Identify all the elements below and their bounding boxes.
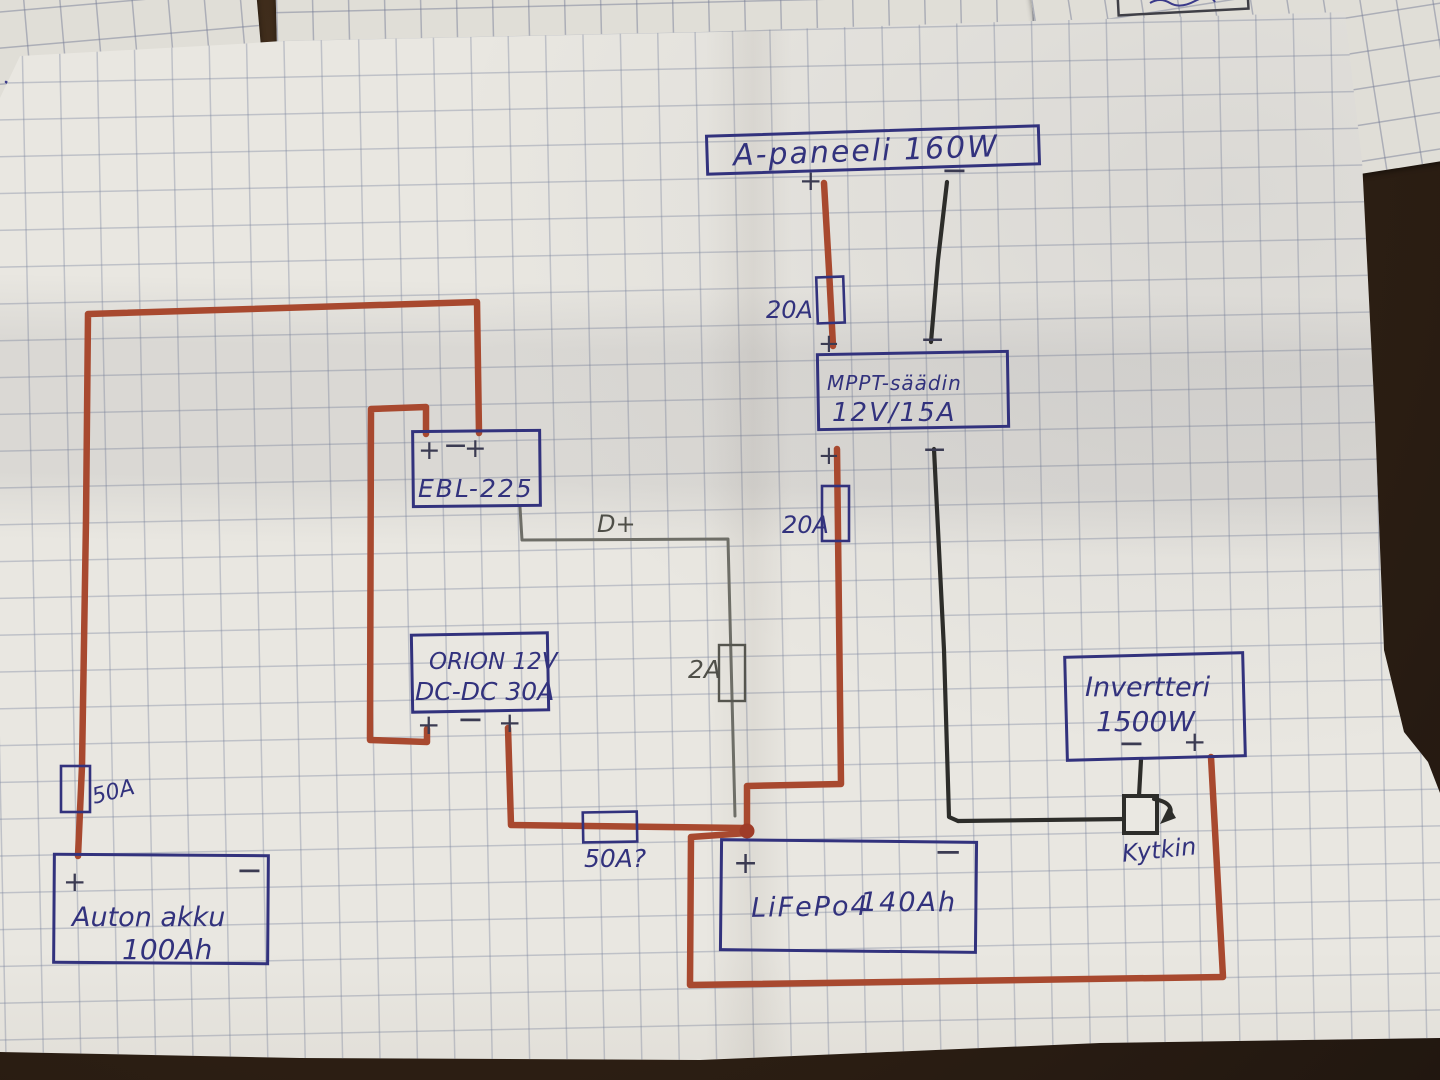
fuse-car-battery-50a: [61, 766, 90, 812]
inverter-plus-terminal: +: [1183, 725, 1206, 758]
mppt-plus-bottom-terminal: +: [818, 441, 840, 471]
fuse-dplus-label: 2A: [688, 655, 721, 684]
fuse-panel-label: 20A: [766, 296, 813, 324]
component-boxes: [54, 126, 1246, 964]
blue-scribble-on-back-sheet: [1150, 0, 1215, 6]
graph-paper-sheet: A-paneeli 160W + − 20A + − MPPT-säädin 1…: [0, 0, 1440, 1080]
ebl-name: EBL-225: [418, 474, 534, 503]
switch-lever-arrowhead: [1160, 806, 1176, 824]
switch-symbol: [1124, 796, 1176, 833]
wire-junction-blob: [740, 824, 755, 839]
ebl-terminal-1: +: [418, 435, 441, 466]
car-battery-name: Auton akku: [70, 902, 225, 933]
orion-name-line1: ORION 12V: [429, 649, 560, 675]
photo-of-wiring-diagram: A-paneeli 160W + − 20A + − MPPT-säädin 1…: [0, 0, 1440, 1080]
mppt-plus-top-terminal: +: [818, 329, 840, 359]
fuse-orion-label: 50A?: [584, 844, 646, 873]
orion-terminal-3: +: [498, 706, 521, 739]
orion-terminal-1: +: [417, 708, 440, 741]
inverter-minus-terminal: −: [1118, 724, 1145, 762]
mppt-minus-top-terminal: −: [920, 322, 945, 357]
mppt-name: MPPT-säädin: [827, 371, 962, 395]
lifepo-plus-terminal: +: [733, 846, 758, 881]
partial-box-on-back-sheet: [1118, 0, 1249, 15]
fuse-car-battery-label: 50A: [89, 775, 137, 810]
wire-inverter-minus-to-switch: [1139, 760, 1141, 796]
inverter-name: Invertteri: [1085, 672, 1211, 703]
wire-mppt-minus-to-lifepo: [934, 449, 958, 821]
ebl-terminal-3: +: [464, 433, 487, 464]
wire-mppt-plus-to-junction: [747, 449, 841, 832]
car-battery-plus-terminal: +: [63, 865, 86, 898]
lifepo-capacity: 140Ah: [860, 887, 957, 918]
dplus-label: D+: [597, 510, 636, 538]
inverter-rating: 1500W: [1096, 705, 1196, 738]
car-battery-capacity: 100Ah: [122, 933, 212, 966]
lifepo-name: LiFePo4: [751, 891, 870, 924]
mppt-rating: 12V/15A: [832, 398, 957, 428]
switch-body: [1124, 796, 1157, 833]
solar-panel-plus-terminal: +: [799, 164, 822, 197]
fuse-mppt-label: 20A: [782, 511, 829, 539]
car-battery-minus-terminal: −: [236, 851, 263, 889]
wire-lifepo-minus-to-switch: [958, 819, 1126, 821]
wire-panel-minus-to-mppt: [931, 182, 947, 342]
wire-panel-plus-to-mppt: [824, 183, 833, 346]
lifepo-minus-terminal: −: [934, 832, 963, 872]
wire-car-battery-to-ebl: [78, 302, 479, 856]
fuses: [61, 277, 849, 843]
switch-label: Kytkin: [1121, 832, 1198, 868]
orion-name-line2: DC-DC 30A: [415, 677, 554, 706]
mppt-minus-bottom-terminal: −: [922, 432, 947, 467]
orion-terminal-2: −: [457, 700, 484, 738]
solar-panel-minus-terminal: −: [941, 151, 968, 189]
